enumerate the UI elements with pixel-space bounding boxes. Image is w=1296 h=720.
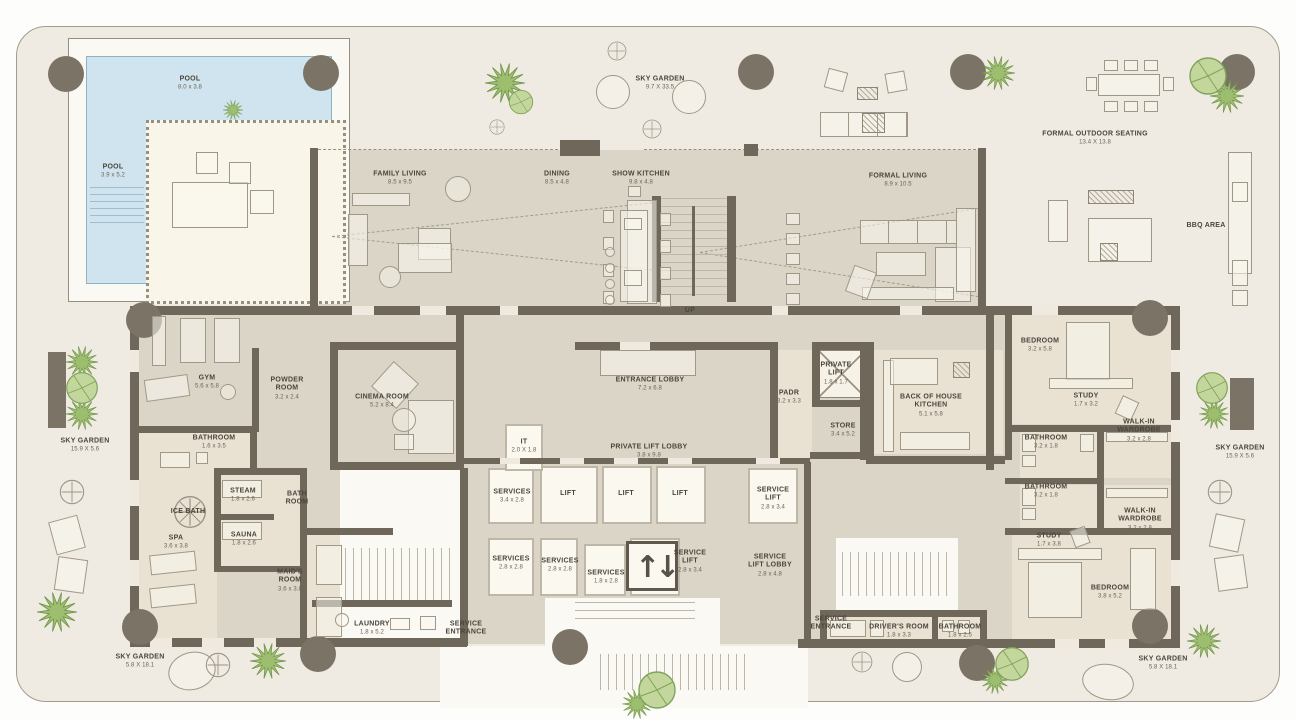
label-dims-formal-outdoor-seating: 13.4 X 13.8 xyxy=(1042,140,1148,147)
label-drivers-room: DRIVER'S ROOM1.8 x 3.3 xyxy=(869,624,929,641)
label-dims-services-3: 2.8 x 2.8 xyxy=(541,567,578,574)
label-dims-maids-room: 3.6 x 3.8 xyxy=(277,586,303,593)
label-powder-room: POWDERROOM3.2 x 2.4 xyxy=(271,377,304,402)
label-bathroom-bottom-right: BATHROOM1.8 x 2.5 xyxy=(939,624,982,641)
label-dims-bedroom-bottom: 3.8 x 5.2 xyxy=(1091,594,1129,601)
label-dims-family-living: 8.5 x 9.5 xyxy=(373,180,426,187)
label-dims-private-lift: 1.8 x 1.7 xyxy=(820,379,851,386)
label-bathroom-gym: BATHROOM1.6 x 3.5 xyxy=(193,435,236,452)
label-dims-store: 3.4 x 5.2 xyxy=(830,432,855,439)
label-dims-dining: 8.5 x 4.8 xyxy=(544,180,570,187)
label-dims-back-of-house-kitchen: 5.1 x 5.8 xyxy=(900,411,962,418)
label-dims-cinema-room: 5.2 x 8.4 xyxy=(355,403,409,410)
label-service-entrance-right: SERVICEENTRANCE xyxy=(811,616,852,633)
label-bbq-area: BBQ AREA xyxy=(1186,222,1225,230)
label-family-living: FAMILY LIVING8.5 x 9.5 xyxy=(373,171,426,188)
label-dims-service-lift-lobby: 2.8 x 4.8 xyxy=(748,571,792,578)
label-walk-in-wardrobe-top: WALK-INWARDROBE3.2 x 2.8 xyxy=(1117,419,1161,444)
label-dims-sauna: 1.8 x 2.6 xyxy=(231,541,257,548)
label-formal-living: FORMAL LIVING8.9 x 10.5 xyxy=(869,173,927,190)
label-dims-powder-room: 3.2 x 2.4 xyxy=(271,394,304,401)
label-sauna: SAUNA1.8 x 2.6 xyxy=(231,532,257,549)
label-dims-steam: 1.8 x 2.6 xyxy=(230,497,256,504)
label-dims-padr: 3.2 x 3.3 xyxy=(777,399,801,406)
label-dims-bathroom-gym: 1.6 x 3.5 xyxy=(193,444,236,451)
label-dining: DINING8.5 x 4.8 xyxy=(544,171,570,188)
label-dims-formal-living: 8.9 x 10.5 xyxy=(869,182,927,189)
label-dims-drivers-room: 1.8 x 3.3 xyxy=(869,633,929,640)
label-back-of-house-kitchen: BACK OF HOUSEKITCHEN5.1 x 5.8 xyxy=(900,394,962,419)
label-dims-sky-garden-bottom-right: 5.8 X 18.1 xyxy=(1138,665,1187,672)
label-formal-outdoor-seating: FORMAL OUTDOOR SEATING13.4 X 13.8 xyxy=(1042,131,1148,148)
label-dims-private-lift-lobby: 3.8 x 9.8 xyxy=(611,453,688,460)
label-dims-sky-garden-top: 9.7 X 33.5 xyxy=(635,85,684,92)
label-dims-walk-in-wardrobe-bottom: 3.2 x 2.8 xyxy=(1118,525,1162,532)
label-dims-gym: 5.6 x 5.8 xyxy=(195,384,219,391)
label-services-4: SERVICES1.8 x 2.8 xyxy=(587,570,624,587)
label-store: STORE3.4 x 5.2 xyxy=(830,423,855,440)
label-bathroom-right-1: BATHROOM3.2 x 1.8 xyxy=(1025,435,1068,452)
label-dims-sky-garden-bottom-left: 5.8 X 18.1 xyxy=(115,663,164,670)
label-dims-entrance-lobby: 7.2 x 6.8 xyxy=(616,386,685,393)
label-services-2: SERVICES2.8 x 2.8 xyxy=(492,556,529,573)
label-dims-services-2: 2.8 x 2.8 xyxy=(492,565,529,572)
label-lift-2: LIFT xyxy=(618,490,634,498)
label-sky-garden-top: SKY GARDEN9.7 X 33.5 xyxy=(635,76,684,93)
label-dims-bedroom-top: 3.2 x 5.8 xyxy=(1021,347,1059,354)
label-service-lift-center: SERVICELIFT2.8 x 3.4 xyxy=(674,550,706,575)
label-dims-services-1: 3.4 x 2.8 xyxy=(493,498,530,505)
floor-plan: ↑↓ POOL8.0 x 3.8POOL3.9 x 5.2SKY GARDEN9… xyxy=(0,0,1296,720)
label-dims-show-kitchen: 9.8 x 4.8 xyxy=(612,180,670,187)
label-pool-left: POOL3.9 x 5.2 xyxy=(101,164,125,181)
label-up: UP xyxy=(685,307,695,315)
label-sky-garden-bottom-right: SKY GARDEN5.8 X 18.1 xyxy=(1138,656,1187,673)
label-dims-services-4: 1.8 x 2.8 xyxy=(587,579,624,586)
labels-layer: POOL8.0 x 3.8POOL3.9 x 5.2SKY GARDEN9.7 … xyxy=(0,0,1296,720)
label-steam: STEAM1.8 x 2.6 xyxy=(230,488,256,505)
label-padr: PADR3.2 x 3.3 xyxy=(777,390,801,407)
label-sky-garden-left: SKY GARDEN15.9 X 5.6 xyxy=(60,438,109,455)
label-dims-walk-in-wardrobe-top: 3.2 x 2.8 xyxy=(1117,436,1161,443)
label-entrance-lobby: ENTRANCE LOBBY7.2 x 6.8 xyxy=(616,377,685,394)
label-show-kitchen: SHOW KITCHEN9.8 x 4.8 xyxy=(612,171,670,188)
label-dims-sky-garden-right: 15.9 X 5.6 xyxy=(1215,454,1264,461)
label-it-room: IT2.0 X 1.8 xyxy=(512,439,537,456)
label-dims-pool-top: 8.0 x 3.8 xyxy=(178,85,202,92)
label-dims-it-room: 2.0 X 1.8 xyxy=(512,448,537,455)
label-lift-3: LIFT xyxy=(672,490,688,498)
label-bath-room: BATHROOM xyxy=(286,491,309,508)
label-cinema-room: CINEMA ROOM5.2 x 8.4 xyxy=(355,394,409,411)
label-dims-bathroom-right-1: 3.2 x 1.8 xyxy=(1025,444,1068,451)
label-dims-pool-left: 3.9 x 5.2 xyxy=(101,173,125,180)
label-dims-spa: 3.6 x 3.8 xyxy=(164,544,188,551)
label-service-lift-lobby: SERVICELIFT LOBBY2.8 x 4.8 xyxy=(748,554,792,579)
label-service-lift-right: SERVICELIFT2.8 x 3.4 xyxy=(757,487,789,512)
label-services-1: SERVICES3.4 x 2.8 xyxy=(493,489,530,506)
label-dims-service-lift-center: 2.8 x 3.4 xyxy=(674,567,706,574)
label-pool-top: POOL8.0 x 3.8 xyxy=(178,76,202,93)
label-ice-bath: ICE BATH xyxy=(171,508,206,516)
label-maids-room: MAID'SROOM3.6 x 3.8 xyxy=(277,569,303,594)
label-private-lift-lobby: PRIVATE LIFT LOBBY3.8 x 9.8 xyxy=(611,444,688,461)
label-lift-1: LIFT xyxy=(560,490,576,498)
label-dims-sky-garden-left: 15.9 X 5.6 xyxy=(60,447,109,454)
label-dims-bathroom-bottom-right: 1.8 x 2.5 xyxy=(939,633,982,640)
label-private-lift: PRIVATELIFT1.8 x 1.7 xyxy=(820,362,851,387)
label-services-3: SERVICES2.8 x 2.8 xyxy=(541,558,578,575)
label-dims-laundry: 1.8 x 5.2 xyxy=(354,630,390,637)
label-dims-study-bottom: 1.7 x 3.8 xyxy=(1037,542,1062,549)
label-bathroom-right-2: BATHROOM3.2 x 1.8 xyxy=(1025,484,1068,501)
label-study-bottom: STUDY1.7 x 3.8 xyxy=(1037,533,1062,550)
label-sky-garden-right: SKY GARDEN15.9 X 5.6 xyxy=(1215,445,1264,462)
label-study-top: STUDY1.7 x 3.2 xyxy=(1074,393,1099,410)
label-dims-study-top: 1.7 x 3.2 xyxy=(1074,402,1099,409)
label-spa: SPA3.6 x 3.8 xyxy=(164,535,188,552)
label-laundry: LAUNDRY1.8 x 5.2 xyxy=(354,621,390,638)
label-service-entrance-left: SERVICEENTRANCE xyxy=(446,621,487,638)
label-dims-bathroom-right-2: 3.2 x 1.8 xyxy=(1025,493,1068,500)
label-bedroom-top: BEDROOM3.2 x 5.8 xyxy=(1021,338,1059,355)
label-bedroom-bottom: BEDROOM3.8 x 5.2 xyxy=(1091,585,1129,602)
label-gym: GYM5.6 x 5.8 xyxy=(195,375,219,392)
label-walk-in-wardrobe-bottom: WALK-INWARDROBE3.2 x 2.8 xyxy=(1118,508,1162,533)
label-dims-service-lift-right: 2.8 x 3.4 xyxy=(757,504,789,511)
label-sky-garden-bottom-left: SKY GARDEN5.8 X 18.1 xyxy=(115,654,164,671)
